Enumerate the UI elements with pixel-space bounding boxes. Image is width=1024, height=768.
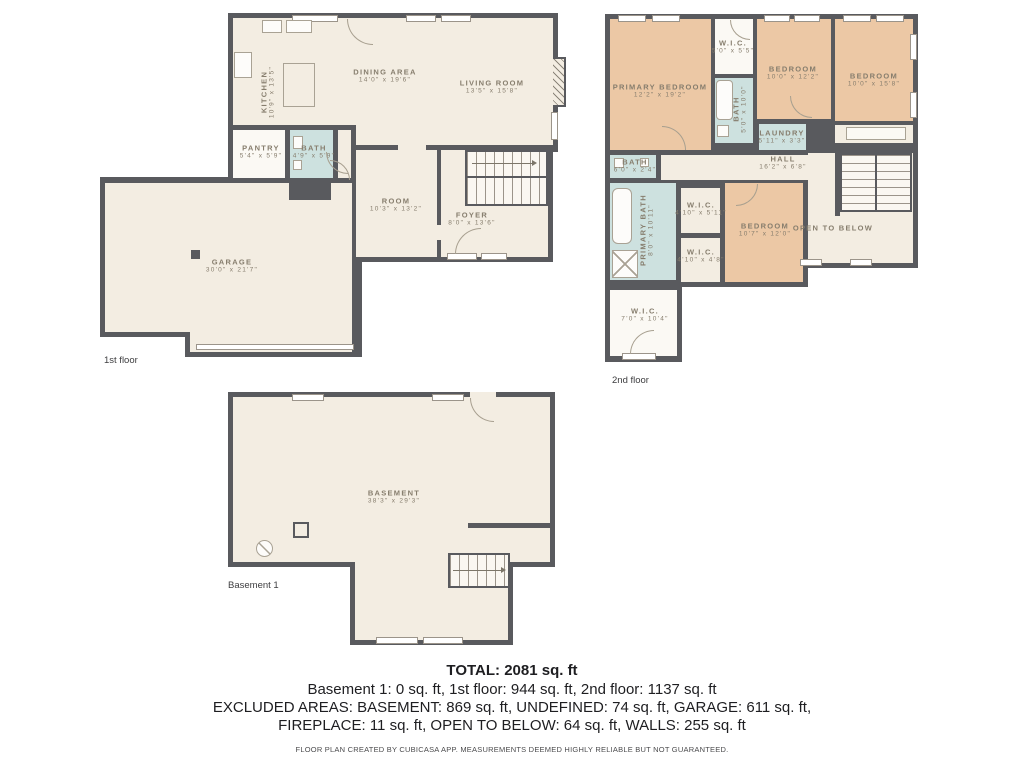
room-basement [233, 397, 550, 562]
area-summary: TOTAL: 2081 sq. ft Basement 1: 0 sq. ft,… [0, 661, 1024, 754]
water-heater-icon [256, 540, 273, 557]
floor-plan-page: KITCHEN 10'9" x 13'5" DINING AREA 14'0" … [0, 0, 1024, 768]
window [423, 637, 463, 644]
excluded-areas-line2: FIREPLACE: 11 sq. ft, OPEN TO BELOW: 64 … [0, 717, 1024, 735]
room-label-basement: BASEMENT 38'3" x 29'3" [368, 488, 420, 506]
stair-arrow-icon [501, 567, 506, 573]
floor-tag-basement: Basement 1 [228, 580, 279, 591]
window [292, 394, 324, 401]
support-post [293, 522, 309, 538]
room-dims: 38'3" x 29'3" [368, 498, 420, 506]
total-area-line: TOTAL: 2081 sq. ft [0, 661, 1024, 681]
window [376, 637, 418, 644]
floor-areas-line: Basement 1: 0 sq. ft, 1st floor: 944 sq.… [0, 681, 1024, 699]
window [432, 394, 464, 401]
stair-arrow-line [453, 570, 501, 571]
excluded-areas-line1: EXCLUDED AREAS: BASEMENT: 869 sq. ft, UN… [0, 699, 1024, 717]
disclaimer-line: FLOOR PLAN CREATED BY CUBICASA APP. MEAS… [0, 745, 1024, 754]
basement-plan: BASEMENT 38'3" x 29'3" Basement 1 [0, 0, 1024, 660]
interior-wall [468, 523, 550, 528]
room-name: BASEMENT [368, 488, 420, 497]
